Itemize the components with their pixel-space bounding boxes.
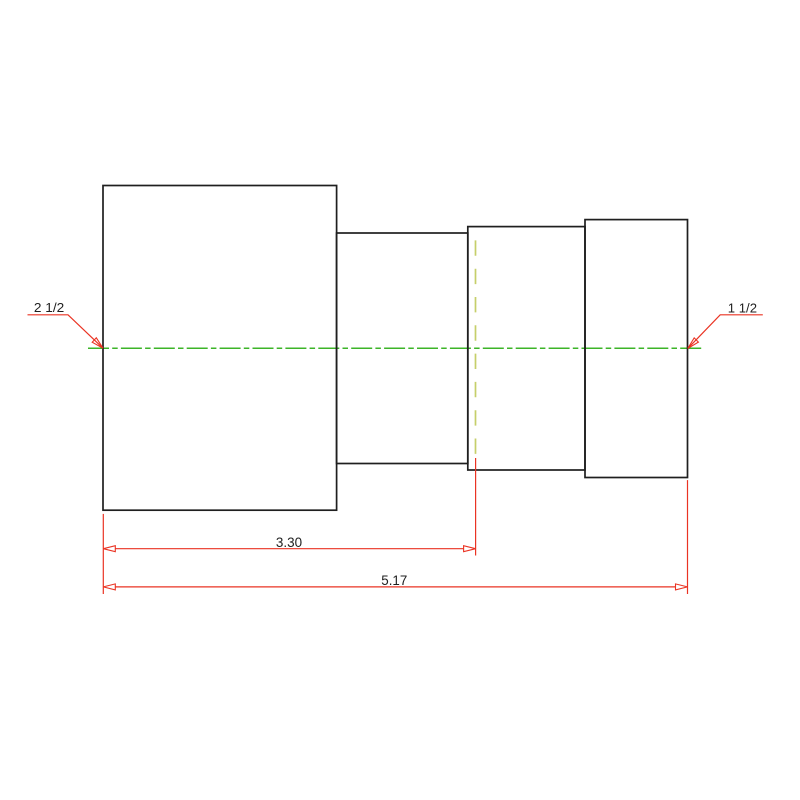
svg-text:3.30: 3.30: [276, 534, 302, 550]
svg-text:2 1/2: 2 1/2: [34, 300, 64, 315]
svg-text:5.17: 5.17: [381, 572, 407, 588]
svg-text:1 1/2: 1 1/2: [728, 300, 757, 315]
